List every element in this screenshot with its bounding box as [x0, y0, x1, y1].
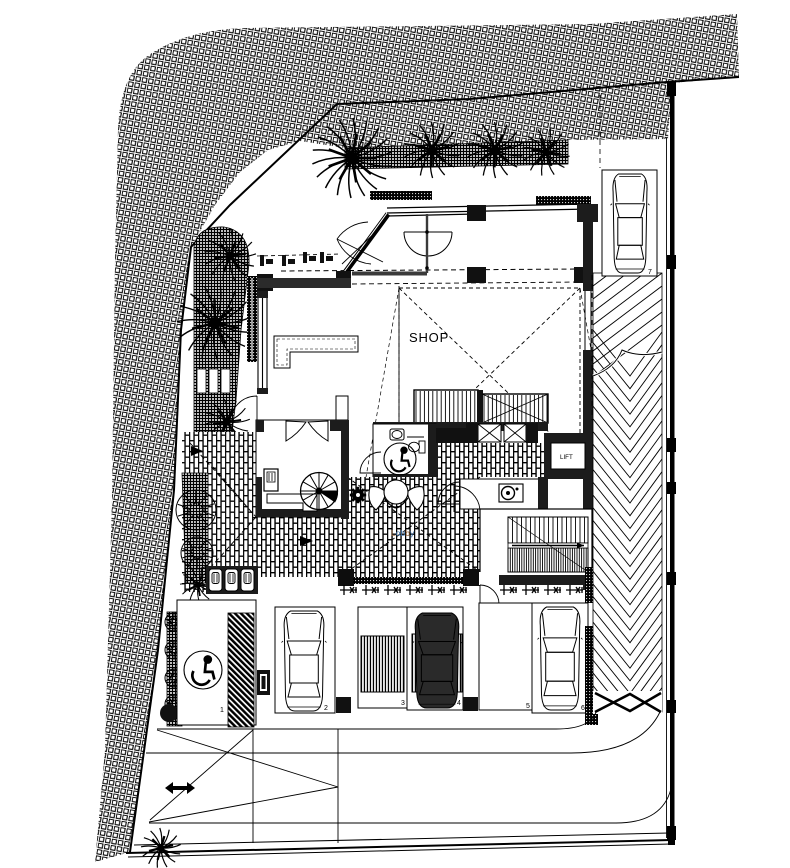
- svg-text:LIFT: LIFT: [560, 454, 573, 461]
- svg-text:7: 7: [648, 269, 652, 276]
- svg-text:2: 2: [324, 705, 328, 712]
- svg-text:SHOP: SHOP: [409, 330, 449, 345]
- svg-text:4: 4: [457, 700, 461, 707]
- svg-text:6: 6: [581, 705, 585, 712]
- svg-text:5: 5: [526, 703, 530, 710]
- svg-text:3: 3: [401, 700, 405, 707]
- svg-text:1: 1: [220, 707, 224, 714]
- svg-text:Lobby: Lobby: [391, 528, 415, 538]
